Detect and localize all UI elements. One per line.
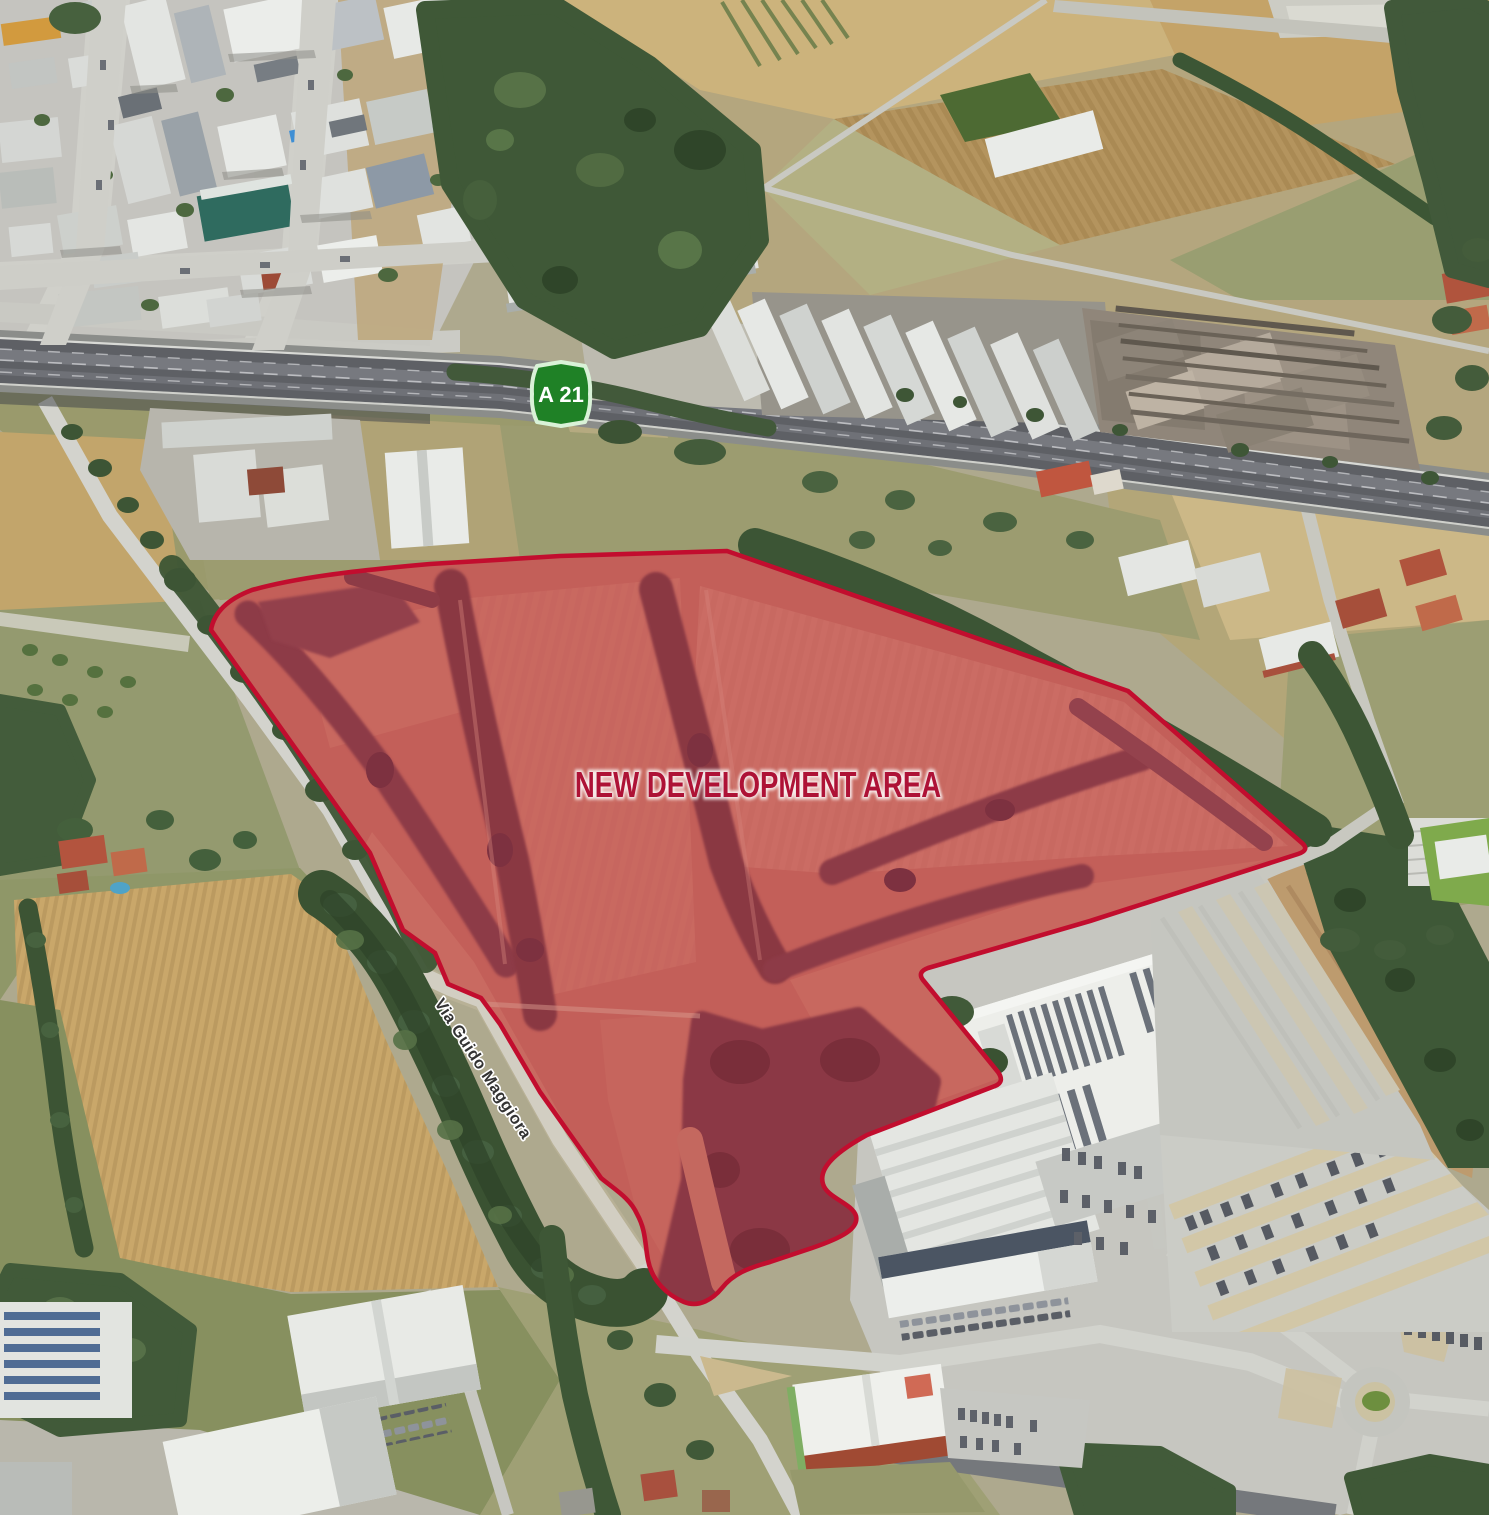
svg-text:A 21: A 21 (538, 382, 584, 407)
svg-text:NEW DEVELOPMENT AREA: NEW DEVELOPMENT AREA (575, 764, 941, 804)
